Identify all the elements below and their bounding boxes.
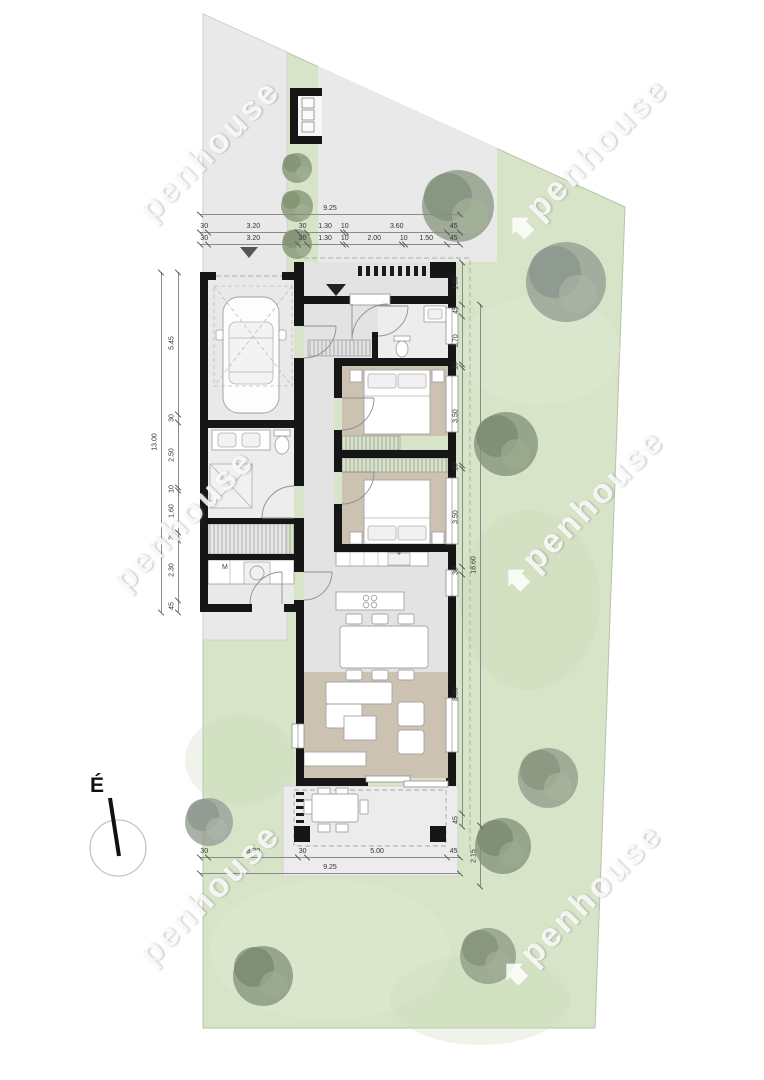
window-icon	[446, 308, 458, 344]
bush-icon	[282, 229, 312, 259]
washing-machine-label: M	[222, 564, 228, 571]
entry-grate-icon	[358, 266, 426, 276]
tree-icon	[474, 412, 538, 476]
window-icon	[446, 698, 458, 752]
north-label: É	[90, 774, 104, 798]
tree-icon	[518, 748, 578, 808]
window-icon	[446, 570, 458, 596]
car-icon	[216, 297, 286, 413]
tree-icon	[526, 242, 606, 322]
walkin-closet	[208, 524, 294, 554]
corridor-floor	[304, 358, 334, 556]
tv-bench-icon	[304, 752, 366, 766]
armchair-icon	[398, 730, 424, 754]
terrace-column	[294, 826, 310, 842]
tree-icon	[185, 798, 233, 846]
kitchen-island	[336, 592, 404, 610]
sink-icon	[218, 433, 236, 447]
terrace-column	[430, 826, 446, 842]
bush-icon	[282, 153, 312, 183]
bush-icon	[281, 190, 313, 222]
terrace	[283, 786, 458, 876]
bedroom1-wardrobe	[342, 436, 400, 450]
shower-icon	[210, 464, 252, 508]
bin-enclosure	[290, 88, 322, 144]
kitchen-sink-icon	[388, 553, 410, 565]
coffee-table-icon	[344, 716, 376, 740]
site-plan-page: 9.25303.20301.30103.6045303.20301.30102.…	[0, 0, 764, 1080]
window-icon	[292, 724, 304, 748]
hedge	[281, 153, 313, 259]
window-icon	[446, 478, 458, 544]
hall-closet	[308, 340, 370, 356]
north-arrow	[90, 798, 146, 876]
tree-icon	[233, 946, 293, 1006]
bed-icon	[350, 370, 444, 434]
tree-icon	[475, 818, 531, 874]
bedroom2-wardrobe	[342, 458, 448, 472]
bed-icon	[350, 480, 444, 544]
window-icon	[446, 376, 458, 432]
washing-machine-icon	[244, 562, 270, 584]
armchair-icon	[398, 702, 424, 726]
sink-icon	[242, 433, 260, 447]
sofa-icon	[326, 682, 392, 704]
site-plan-canvas	[0, 0, 764, 1080]
toilet-icon	[274, 430, 290, 454]
tree-icon	[422, 170, 494, 242]
tree-icon	[460, 928, 516, 984]
